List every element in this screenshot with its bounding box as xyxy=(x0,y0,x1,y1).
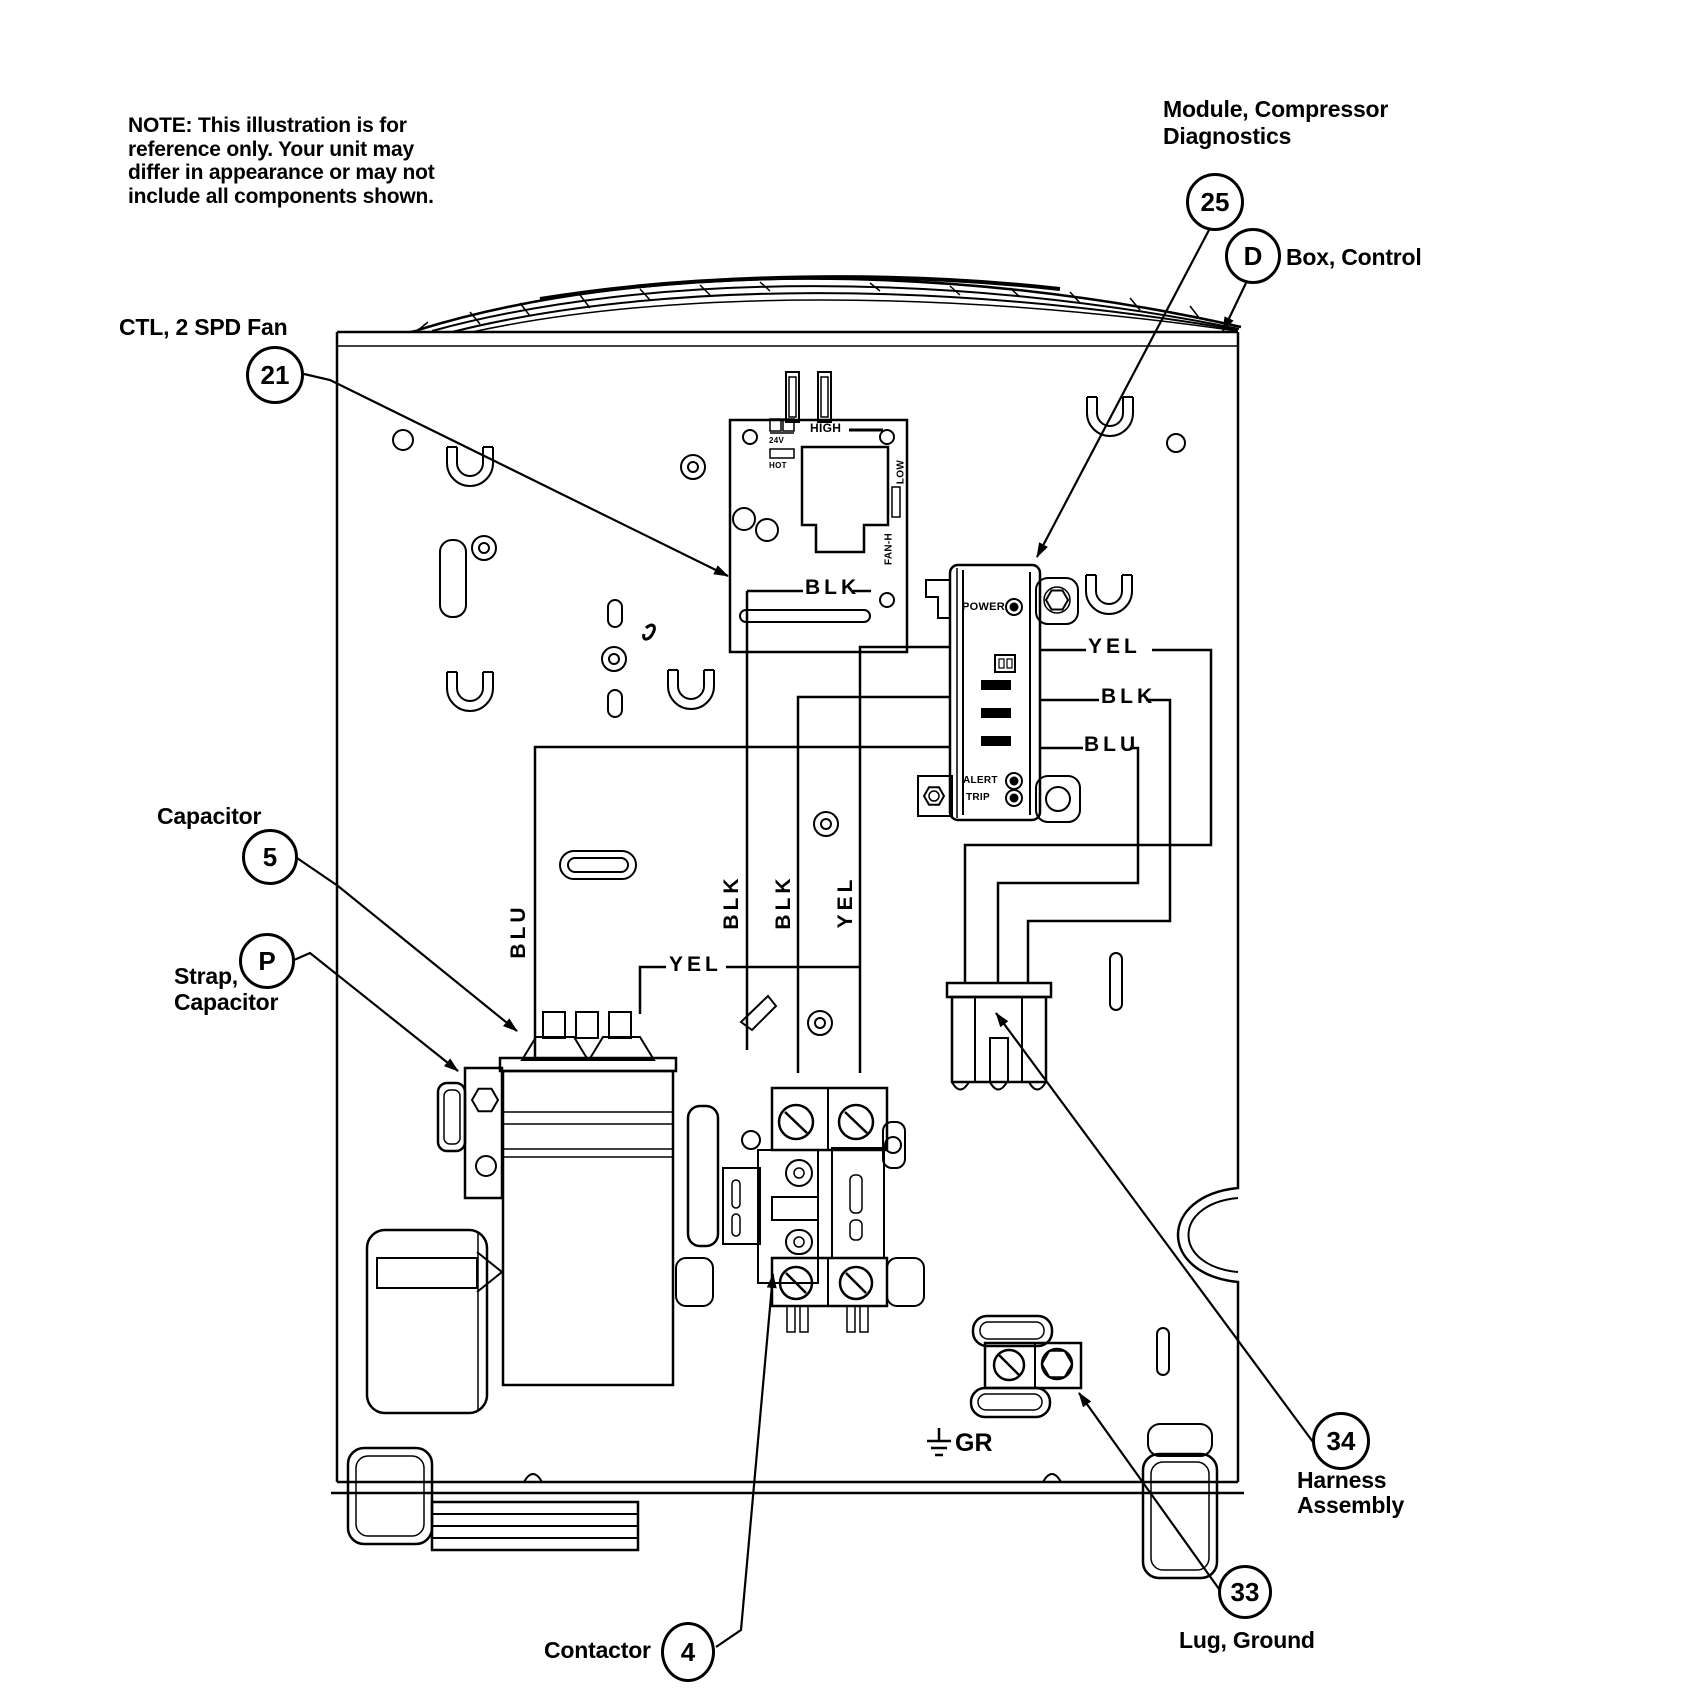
callout-21: 21 xyxy=(246,346,304,404)
callout-25: 25 xyxy=(1186,173,1244,231)
mounting-feet xyxy=(348,1424,1217,1578)
callout-5: 5 xyxy=(242,829,298,885)
label-line: Module, Compressor xyxy=(1163,96,1388,123)
note-line: differ in appearance or may not xyxy=(128,161,435,185)
note-line: reference only. Your unit may xyxy=(128,138,435,162)
note-line: include all components shown. xyxy=(128,185,435,209)
wire-label-blk-right: BLK xyxy=(1101,685,1156,709)
label-ctl-fan: CTL, 2 SPD Fan xyxy=(119,314,287,341)
transformer xyxy=(367,1230,502,1413)
module-power-label: POWER xyxy=(962,601,1005,613)
note-text: NOTE: This illustration is for reference… xyxy=(128,114,435,208)
wire-label-blk-board: BLK xyxy=(805,576,860,600)
wire-label-yel-right: YEL xyxy=(1088,635,1141,659)
wire-label-ground: GR xyxy=(955,1429,993,1458)
box-lid xyxy=(408,277,1241,332)
board-24v-label: 24V xyxy=(769,436,784,445)
fan-control-board xyxy=(730,372,907,652)
wire-label-blu-vertical: BLU xyxy=(507,903,531,958)
capacitor xyxy=(500,1012,676,1385)
callout-34: 34 xyxy=(1312,1412,1370,1470)
callout-d: D xyxy=(1225,228,1281,284)
wire-label-yel-mid: YEL xyxy=(669,953,722,977)
contactor xyxy=(676,996,924,1332)
note-line: NOTE: This illustration is for xyxy=(128,114,435,138)
wire-label-blu-right: BLU xyxy=(1084,733,1139,757)
label-line: Harness xyxy=(1297,1468,1404,1493)
label-box-control: Box, Control xyxy=(1286,244,1422,271)
harness-connector xyxy=(947,983,1051,1090)
label-contactor: Contactor xyxy=(544,1637,651,1664)
label-capacitor: Capacitor xyxy=(157,803,261,830)
ground-lug xyxy=(971,1316,1081,1417)
callout-4: 4 xyxy=(661,1622,715,1682)
label-lug-ground: Lug, Ground xyxy=(1179,1627,1315,1654)
wire-label-blk-vertical-1: BLK xyxy=(720,874,744,929)
label-line: Diagnostics xyxy=(1163,123,1388,150)
board-high-label: HIGH xyxy=(810,421,841,435)
parts-diagram: NOTE: This illustration is for reference… xyxy=(0,0,1698,1692)
label-module-compressor: Module, Compressor Diagnostics xyxy=(1163,96,1388,150)
module-trip-label: TRIP xyxy=(966,792,990,803)
board-low-label: LOW xyxy=(896,460,907,484)
ground-symbol-icon xyxy=(927,1428,951,1455)
board-fan-h-label: FAN-H xyxy=(884,533,895,565)
capacitor-strap xyxy=(438,1068,502,1198)
label-line: Capacitor xyxy=(174,989,278,1015)
leader-lines xyxy=(294,230,1313,1647)
callout-p: P xyxy=(239,933,295,989)
module-alert-label: ALERT xyxy=(963,775,998,786)
label-line: Assembly xyxy=(1297,1493,1404,1518)
label-harness-assembly: Harness Assembly xyxy=(1297,1468,1404,1518)
callout-33: 33 xyxy=(1218,1565,1272,1619)
wire-label-yel-vertical: YEL xyxy=(834,876,858,929)
wire-label-blk-vertical-2: BLK xyxy=(772,874,796,929)
board-hot-label: HOT xyxy=(769,461,787,470)
